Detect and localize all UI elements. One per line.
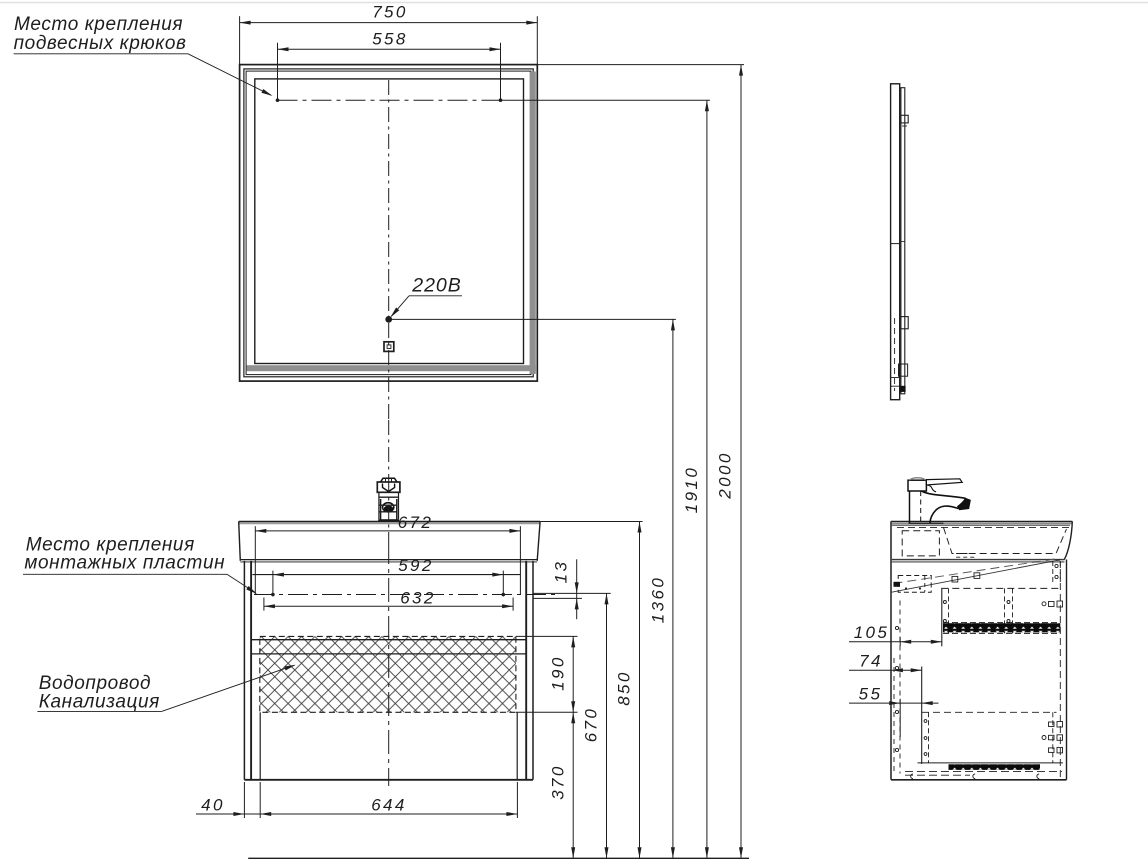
svg-text:подвесных крюков: подвесных крюков [14,33,187,54]
svg-text:592: 592 [398,556,434,575]
svg-text:40: 40 [201,795,225,814]
svg-text:Канализация: Канализация [39,691,160,712]
svg-text:558: 558 [372,29,408,48]
svg-text:13: 13 [552,560,571,584]
svg-text:1360: 1360 [649,576,668,623]
svg-text:74: 74 [859,651,883,670]
svg-text:1910: 1910 [682,466,701,513]
svg-text:190: 190 [549,655,568,691]
svg-text:2000: 2000 [716,451,735,499]
svg-text:монтажных пластин: монтажных пластин [24,553,225,574]
svg-text:670: 670 [582,707,601,743]
svg-text:750: 750 [372,2,408,21]
svg-text:220В: 220В [411,274,462,296]
svg-text:672: 672 [398,513,434,532]
svg-text:370: 370 [549,764,568,800]
svg-text:632: 632 [400,589,436,608]
svg-text:850: 850 [615,670,634,706]
svg-text:644: 644 [371,795,407,814]
svg-text:105: 105 [854,623,890,642]
svg-text:55: 55 [859,684,883,703]
